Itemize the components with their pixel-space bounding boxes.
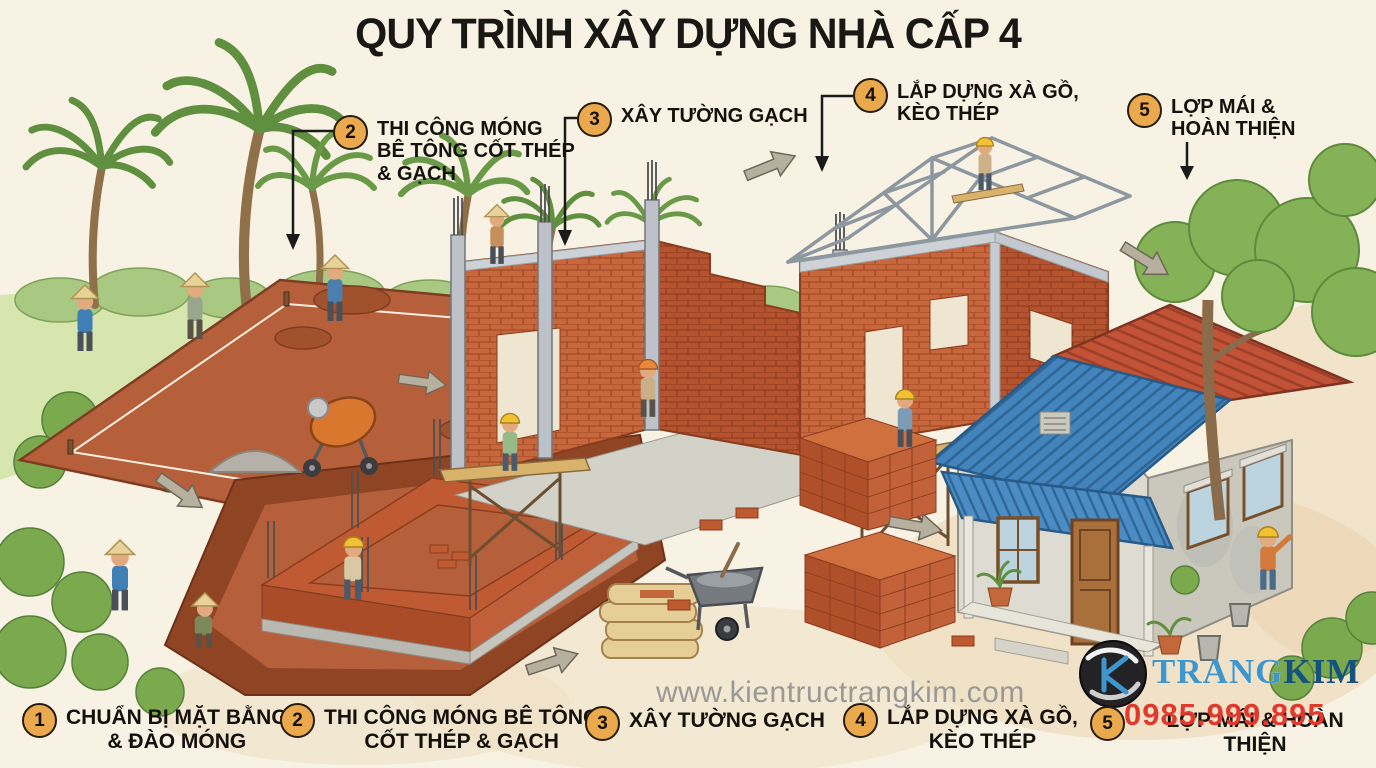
legend-3-badge: 3: [585, 706, 620, 741]
step-2-badge: 2: [333, 115, 368, 150]
phone-number: 0985.999.895: [1124, 697, 1326, 733]
step-3-label: XÂY TƯỜNG GẠCH: [621, 102, 808, 127]
legend-4-badge: 4: [843, 703, 878, 738]
legend-item-3: 3 XÂY TƯỜNG GẠCH: [585, 706, 825, 741]
page-title: QUY TRÌNH XÂY DỰNG NHÀ CẤP 4: [28, 10, 1349, 59]
legend-2-badge: 2: [280, 703, 315, 738]
step-5-label: LỢP MÁI & HOÀN THIỆN: [1171, 93, 1295, 141]
legend-3-label: XÂY TƯỜNG GẠCH: [629, 706, 825, 733]
logo-wordmark: TRANGKIM: [1152, 652, 1360, 692]
legend-5-badge: 5: [1090, 706, 1125, 741]
step-4-badge: 4: [853, 78, 888, 113]
legend-1-label: CHUẨN BỊ MẶT BẰNG & ĐÀO MÓNG: [66, 703, 288, 753]
logo-part-kim: KIM: [1283, 652, 1360, 691]
legend-item-4: 4 LẮP DỰNG XÀ GỒ, KÈO THÉP: [843, 703, 1078, 753]
step-4-label: LẮP DỰNG XÀ GỒ, KÈO THÉP: [897, 78, 1079, 126]
step-3-badge: 3: [577, 102, 612, 137]
infographic-canvas: QUY TRÌNH XÂY DỰNG NHÀ CẤP 4 2 THI CÔNG …: [0, 0, 1376, 768]
step-2-label: THI CÔNG MÓNG BÊ TÔNG CỐT THÉP & GẠCH: [377, 115, 575, 185]
cement-bags-icon: [600, 584, 702, 658]
legend-1-badge: 1: [22, 703, 57, 738]
logo-part-trang: TRANG: [1152, 652, 1283, 691]
step-callout-2: 2 THI CÔNG MÓNG BÊ TÔNG CỐT THÉP & GẠCH: [333, 115, 583, 185]
step-callout-3: 3 XÂY TƯỜNG GẠCH: [577, 102, 837, 137]
legend-4-label: LẮP DỰNG XÀ GỒ, KÈO THÉP: [887, 703, 1078, 753]
step-callout-4: 4 LẮP DỰNG XÀ GỒ, KÈO THÉP: [853, 78, 1083, 126]
legend-item-2: 2 THI CÔNG MÓNG BÊ TÔNG CỐT THÉP & GẠCH: [280, 703, 599, 753]
legend-item-1: 1 CHUẨN BỊ MẶT BẰNG & ĐÀO MÓNG: [22, 703, 288, 753]
step-5-badge: 5: [1127, 93, 1162, 128]
legend-2-label: THI CÔNG MÓNG BÊ TÔNG CỐT THÉP & GẠCH: [324, 703, 599, 753]
step-callout-5: 5 LỢP MÁI & HOÀN THIỆN: [1127, 93, 1347, 141]
